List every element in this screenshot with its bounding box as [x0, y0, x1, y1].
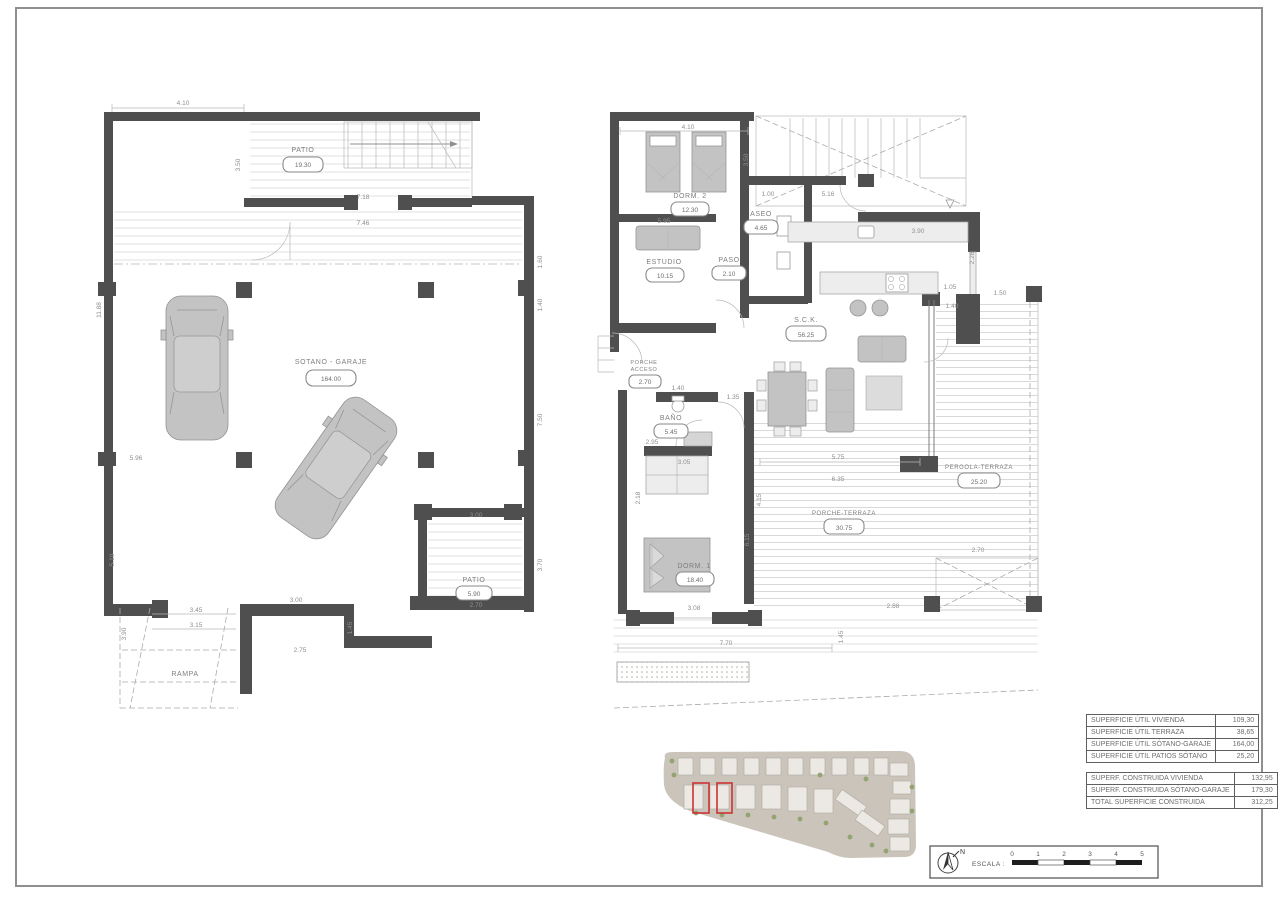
dim: 1.50	[994, 290, 1007, 297]
area-dorm1: 18.40	[687, 577, 704, 584]
area-porche-terraza: 30.75	[836, 525, 853, 532]
scale-tick: 2	[1062, 851, 1066, 858]
table-row: TOTAL SUPERFICIE CONSTRUIDA 312,25	[1087, 797, 1278, 809]
dim: 3.70	[537, 558, 544, 571]
dim: 5.75	[832, 454, 845, 461]
area-porche-acceso: 2.70	[639, 379, 652, 386]
dim: 5.95	[658, 218, 671, 225]
lower-band-hatch	[614, 614, 1038, 656]
dim: 1.40	[537, 298, 544, 311]
row-label: SUPERFICIE ÚTIL PATIOS SÓTANO	[1087, 751, 1216, 763]
sink-icon	[777, 252, 790, 269]
area-sck: 56.25	[798, 332, 815, 339]
row-label: SUPERFICIE ÚTIL TERRAZA	[1087, 727, 1216, 739]
dim: 4.10	[177, 100, 190, 107]
dim: 1.05	[944, 284, 957, 291]
upper-band-hatch	[114, 206, 522, 262]
dim: 1.35	[727, 394, 740, 401]
stool-icon	[850, 300, 866, 316]
row-label: SUPERF. CONSTRUIDA VIVIENDA	[1087, 773, 1235, 785]
dim: 1.40	[672, 385, 685, 392]
room-label-rampa: RAMPA	[171, 671, 198, 678]
dim: 2.88	[887, 603, 900, 610]
table-row: SUPERFICIE ÚTIL SÓTANO-GARAJE 164,00	[1087, 739, 1259, 751]
scale-tick: 4	[1114, 851, 1118, 858]
dim: 3.90	[121, 627, 128, 640]
room-label-paso: PASO	[718, 257, 739, 264]
row-label: SUPERFICIE ÚTIL VIVIENDA	[1087, 715, 1216, 727]
area-bano: 5.45	[665, 429, 678, 436]
dim: 5.16	[822, 191, 835, 198]
row-label: TOTAL SUPERFICIE CONSTRUIDA	[1087, 797, 1235, 809]
area-patio-bottom: 5.90	[468, 591, 481, 598]
area-paso: 2.10	[723, 271, 736, 278]
dim: 2.18	[635, 491, 642, 504]
dim: 6.35	[832, 476, 845, 483]
rampa-area	[120, 608, 238, 708]
scale-tick: 1	[1036, 851, 1040, 858]
planter	[617, 662, 749, 682]
site-plan	[664, 751, 916, 858]
patio2-hatch	[428, 518, 522, 596]
superficie-util-table: SUPERFICIE ÚTIL VIVIENDA 109,30 SUPERFIC…	[1086, 714, 1259, 763]
row-value: 164,00	[1216, 739, 1259, 751]
area-pergola-terraza: 25.20	[971, 479, 988, 486]
dim: 7.50	[537, 413, 544, 426]
dim: 7.18	[357, 194, 370, 201]
dim: 4.10	[682, 124, 695, 131]
room-label-pergola-terraza: PERGOLA-TERRAZA	[945, 465, 1013, 471]
table-row: SUPERF. CONSTRUIDA SÓTANO-GARAJE 179,30	[1087, 785, 1278, 797]
row-value: 179,30	[1234, 785, 1277, 797]
dim: 1.45	[347, 621, 354, 634]
dim: 3.00	[470, 512, 483, 519]
row-value: 312,25	[1234, 797, 1277, 809]
north-scale-box: N ESCALA : 0 1 2 3 4 5	[930, 846, 1158, 878]
room-label-porche-acceso: PORCHE	[630, 360, 657, 366]
dim: 7.70	[720, 640, 733, 647]
dim: 3.50	[235, 158, 242, 171]
dim: 5.96	[130, 455, 143, 462]
room-label-patio-top: PATIO	[292, 147, 315, 154]
row-value: 132,95	[1234, 773, 1277, 785]
room-label-porche-terraza: PORCHE-TERRAZA	[812, 511, 876, 517]
room-label-dorm2: DORM. 2	[673, 193, 706, 200]
table-row: SUPERFICIE ÚTIL PATIOS SÓTANO 25,20	[1087, 751, 1259, 763]
north-label: N	[960, 849, 965, 856]
table-row: SUPERF. CONSTRUIDA VIVIENDA 132,95	[1087, 773, 1278, 785]
dim: 7.46	[357, 220, 370, 227]
room-label-estudio: ESTUDIO	[646, 259, 681, 266]
room-label-porche-acceso-2: ACCESO	[631, 367, 658, 373]
dim: 2.95	[646, 439, 659, 446]
scale-tick: 5	[1140, 851, 1144, 858]
table-row: SUPERFICIE ÚTIL VIVIENDA 109,30	[1087, 715, 1259, 727]
row-label: SUPERFICIE ÚTIL SÓTANO-GARAJE	[1087, 739, 1216, 751]
area-aseo: 4.65	[755, 225, 768, 232]
table-row: SUPERFICIE ÚTIL TERRAZA 38,65	[1087, 727, 1259, 739]
dim: 2.75	[294, 647, 307, 654]
room-label-dorm1: DORM. 1	[677, 563, 710, 570]
area-dorm2: 12.30	[682, 207, 699, 214]
superficie-construida-table: SUPERF. CONSTRUIDA VIVIENDA 132,95 SUPER…	[1086, 772, 1278, 809]
room-label-garage: SOTANO - GARAJE	[295, 359, 367, 366]
scale-label: ESCALA :	[972, 861, 1005, 868]
dim: 4.15	[756, 493, 763, 506]
stairs-upper-icon	[756, 116, 966, 208]
stool-icon	[872, 300, 888, 316]
scale-tick: 0	[1010, 851, 1014, 858]
area-estudio: 10.15	[657, 273, 674, 280]
dim: 1.40	[946, 303, 959, 310]
dim: 1.45	[838, 630, 845, 643]
row-value: 25,20	[1216, 751, 1259, 763]
dim: 1.60	[537, 255, 544, 268]
dim: 3.15	[190, 622, 203, 629]
dim: 3.90	[912, 228, 925, 235]
dim: 11.88	[96, 302, 103, 318]
car-2-icon	[265, 388, 407, 547]
dim: 3.05	[678, 459, 691, 466]
row-value: 109,30	[1216, 715, 1259, 727]
dim: 2.70	[470, 602, 483, 609]
dim: 3.45	[190, 607, 203, 614]
right-plan-vivienda: DORM. 2 12.30 ASEO 4.65 ESTUDIO 10.15 PA…	[598, 112, 1042, 708]
scale-tick: 3	[1088, 851, 1092, 858]
bed-double-icon	[646, 132, 726, 192]
dim: 3.50	[743, 153, 750, 166]
dim: 2.28	[969, 251, 976, 264]
page-border	[16, 8, 1262, 886]
row-label: SUPERF. CONSTRUIDA SÓTANO-GARAJE	[1087, 785, 1235, 797]
left-plan-sotano: PATIO 19.30 SOTANO - GARAJE 164.00 PATIO…	[96, 100, 544, 708]
dim: 1.00	[762, 191, 775, 198]
dim: 3.08	[688, 605, 701, 612]
room-label-aseo: ASEO	[750, 211, 772, 218]
dim: 3.00	[290, 597, 303, 604]
pergola-hatch	[936, 302, 1038, 608]
area-patio-top: 19.30	[295, 162, 312, 169]
room-label-sck: S.C.K.	[794, 317, 818, 324]
sofa-set-icon	[826, 336, 906, 432]
kitchen-counter-icon	[788, 222, 968, 294]
car-1-icon	[161, 296, 233, 440]
plan-drawing: PATIO 19.30 SOTANO - GARAJE 164.00 PATIO…	[0, 0, 1280, 904]
room-label-patio-bottom: PATIO	[463, 577, 486, 584]
row-value: 38,65	[1216, 727, 1259, 739]
dim: 2.70	[972, 547, 985, 554]
area-garage: 164.00	[321, 376, 341, 383]
dim: 5.10	[109, 553, 116, 566]
dim: 6.15	[744, 533, 751, 546]
room-label-bano: BAÑO	[660, 413, 682, 422]
floor-plan-sheet: PATIO 19.30 SOTANO - GARAJE 164.00 PATIO…	[0, 0, 1280, 904]
